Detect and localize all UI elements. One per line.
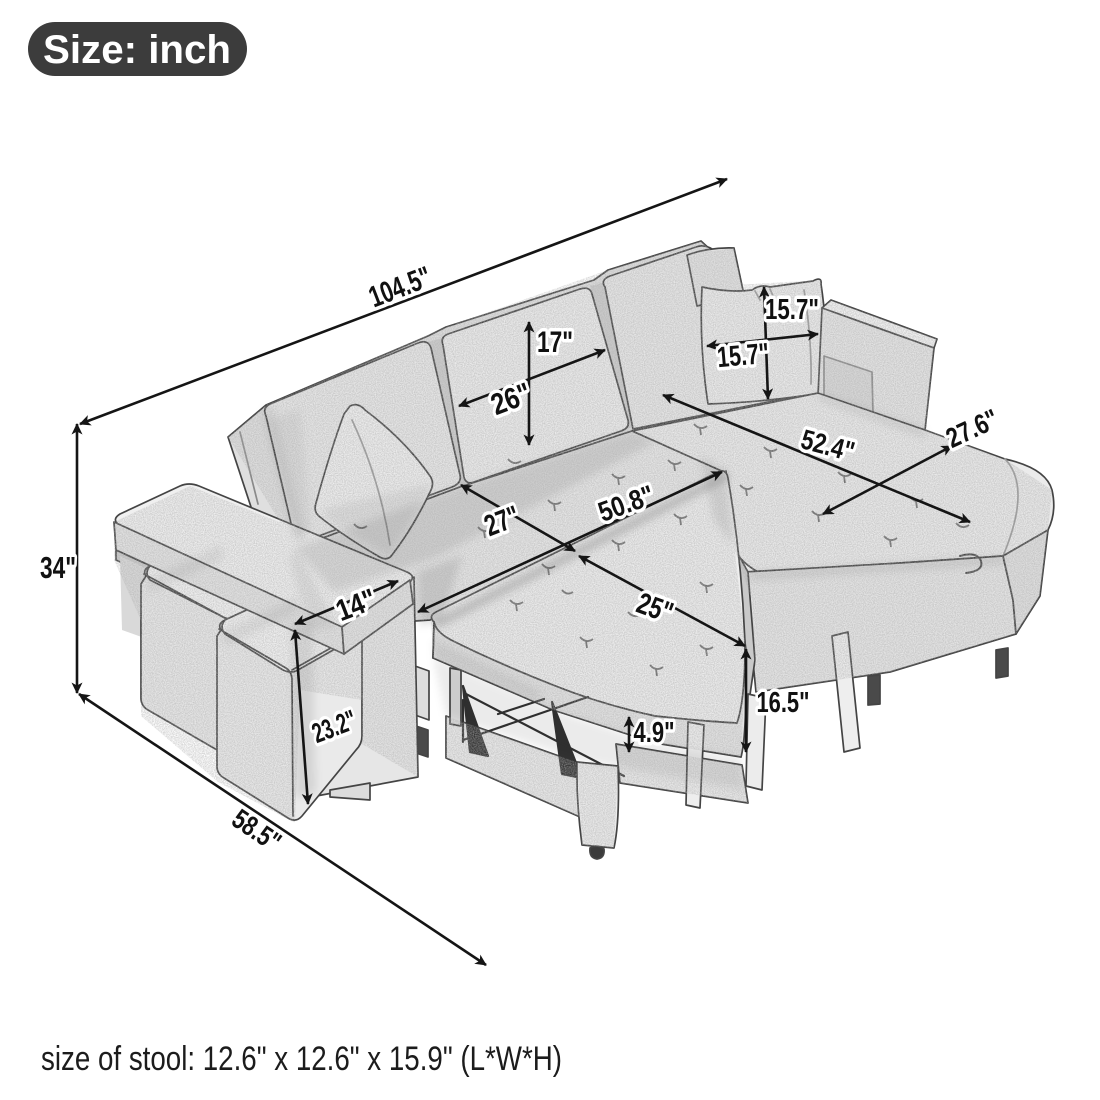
svg-text:Size: inch: Size: inch — [43, 28, 231, 72]
svg-text:16.5": 16.5" — [757, 687, 810, 719]
svg-text:size of stool: 12.6" x 12.6" x: size of stool: 12.6" x 12.6" x 15.9" (L*… — [41, 1040, 562, 1078]
svg-text:15.7": 15.7" — [765, 294, 819, 326]
svg-text:17": 17" — [537, 326, 573, 359]
svg-text:34": 34" — [40, 550, 76, 585]
svg-text:4.9": 4.9" — [634, 717, 675, 749]
svg-text:15.7": 15.7" — [716, 338, 771, 374]
